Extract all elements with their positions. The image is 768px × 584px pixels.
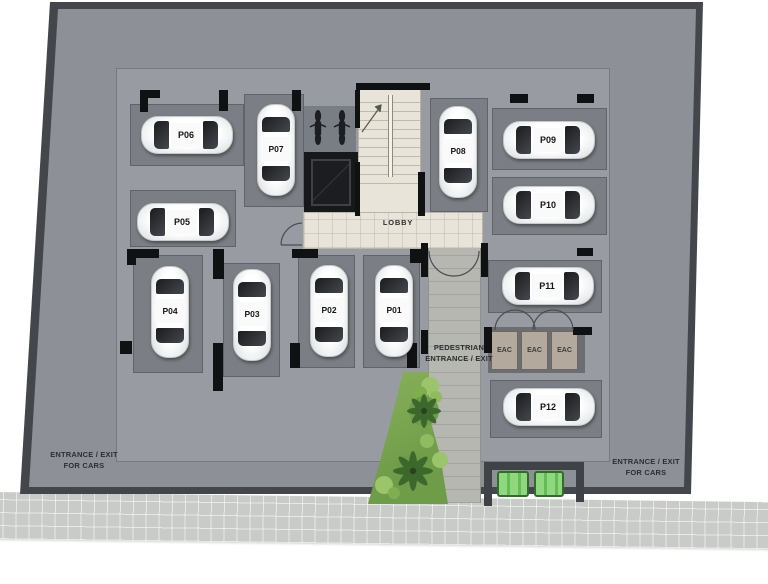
parking-spot-label: P02 bbox=[314, 298, 344, 322]
car-windshield bbox=[565, 126, 580, 154]
car-entrance-right-line2: FOR CARS bbox=[596, 468, 696, 479]
car-windshield bbox=[199, 208, 214, 236]
staircase bbox=[358, 88, 421, 216]
car-rear-window bbox=[238, 331, 266, 346]
car-rear-window bbox=[516, 126, 531, 154]
car-windshield bbox=[565, 393, 580, 421]
elevator-cab bbox=[311, 159, 351, 206]
parking-spot-label: P11 bbox=[532, 274, 562, 298]
wall-segment bbox=[421, 243, 428, 277]
car-p08: P08 bbox=[439, 106, 477, 198]
parking-spot-label: P12 bbox=[533, 395, 563, 419]
eac-room: EAC bbox=[551, 331, 578, 370]
car-entrance-right-line1: ENTRANCE / EXIT bbox=[596, 457, 696, 468]
parking-spot-label: P04 bbox=[155, 299, 185, 323]
motorcycle-parking-area bbox=[304, 106, 356, 152]
parking-spot-label: P01 bbox=[379, 298, 409, 322]
wall-segment bbox=[510, 94, 528, 103]
wall-segment bbox=[120, 341, 132, 354]
bench bbox=[534, 471, 564, 497]
car-entrance-left-line1: ENTRANCE / EXIT bbox=[28, 450, 140, 461]
car-rear-window bbox=[150, 208, 165, 236]
eac-room: EAC bbox=[521, 331, 548, 370]
car-entrance-left-label: ENTRANCE / EXIT FOR CARS bbox=[28, 450, 140, 472]
car-windshield bbox=[262, 117, 290, 132]
car-rear-window bbox=[516, 191, 531, 219]
wall-segment bbox=[356, 83, 430, 90]
wall-segment bbox=[355, 90, 360, 128]
bench bbox=[497, 471, 529, 497]
wall-segment bbox=[577, 94, 594, 103]
wall-segment bbox=[213, 343, 223, 391]
car-rear-window bbox=[156, 328, 184, 343]
car-windshield bbox=[315, 278, 343, 293]
car-p06: P06 bbox=[141, 116, 233, 154]
car-rear-window bbox=[444, 168, 472, 183]
wall-segment bbox=[577, 248, 593, 256]
parking-spot-label: P06 bbox=[171, 123, 201, 147]
car-windshield bbox=[565, 191, 580, 219]
car-p09: P09 bbox=[503, 121, 595, 159]
wall-segment bbox=[290, 343, 300, 368]
car-p01: P01 bbox=[375, 265, 413, 357]
car-rear-window bbox=[262, 166, 290, 181]
wall-segment bbox=[481, 243, 488, 277]
bench-enclosure-wall bbox=[576, 462, 584, 502]
car-windshield bbox=[444, 119, 472, 134]
bench-enclosure-wall bbox=[484, 462, 492, 506]
parking-spot-label: P08 bbox=[443, 139, 473, 163]
car-windshield bbox=[203, 121, 218, 149]
wall-segment bbox=[219, 90, 228, 111]
car-rear-window bbox=[516, 393, 531, 421]
parking-spot-label: P10 bbox=[533, 193, 563, 217]
car-windshield bbox=[238, 282, 266, 297]
parking-floor-plan: EAC EAC EAC P06 P05 bbox=[0, 0, 768, 584]
car-p10: P10 bbox=[503, 186, 595, 224]
parking-spot-label: P07 bbox=[261, 137, 291, 161]
wall-segment bbox=[292, 249, 318, 258]
car-entrance-left-line2: FOR CARS bbox=[28, 461, 140, 472]
wall-segment bbox=[355, 162, 360, 216]
wall-segment bbox=[213, 249, 224, 279]
elevator bbox=[304, 152, 358, 213]
car-rear-window bbox=[315, 327, 343, 342]
car-windshield bbox=[380, 278, 408, 293]
pedestrian-entrance-line2: ENTRANCE / EXIT bbox=[414, 354, 504, 365]
car-entrance-right-label: ENTRANCE / EXIT FOR CARS bbox=[596, 457, 696, 479]
car-windshield bbox=[564, 272, 579, 300]
pedestrian-entrance-label: PEDESTRIAN ENTRANCE / EXIT bbox=[414, 343, 504, 365]
car-p03: P03 bbox=[233, 269, 271, 361]
car-p05: P05 bbox=[137, 203, 229, 241]
parking-spot-label: P05 bbox=[167, 210, 197, 234]
car-rear-window bbox=[515, 272, 530, 300]
parking-spot-label: P03 bbox=[237, 302, 267, 326]
car-p02: P02 bbox=[310, 265, 348, 357]
wall-segment bbox=[140, 90, 148, 112]
pedestrian-entrance-line1: PEDESTRIAN bbox=[414, 343, 504, 354]
car-rear-window bbox=[380, 327, 408, 342]
bench-enclosure-wall bbox=[484, 462, 584, 470]
car-windshield bbox=[156, 279, 184, 294]
car-p04: P04 bbox=[151, 266, 189, 358]
wall-segment bbox=[410, 249, 421, 263]
car-rear-window bbox=[154, 121, 169, 149]
wall-segment bbox=[573, 327, 592, 335]
wall-segment bbox=[418, 172, 425, 216]
wall-segment bbox=[127, 249, 136, 265]
lobby-label: LOBBY bbox=[358, 218, 438, 229]
car-p07: P07 bbox=[257, 104, 295, 196]
stair-divider bbox=[388, 95, 393, 177]
car-p11: P11 bbox=[502, 267, 594, 305]
car-p12: P12 bbox=[503, 388, 595, 426]
parking-spot-label: P09 bbox=[533, 128, 563, 152]
